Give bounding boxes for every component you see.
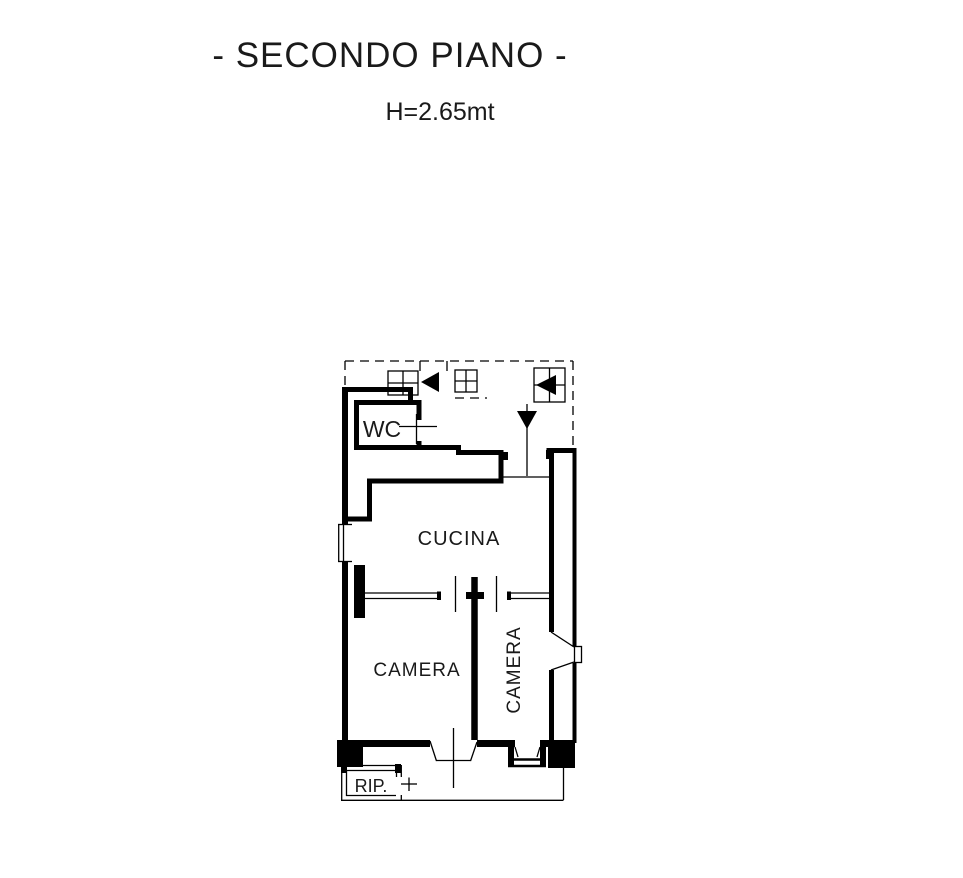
room-label-rip: RIP. <box>355 776 388 796</box>
window-bottom-left <box>430 728 477 788</box>
room-label-camera-left: CAMERA <box>373 660 460 681</box>
room-label-wc: WC <box>363 416 401 442</box>
walls <box>337 387 576 768</box>
kitchen-bedroom-partition <box>364 576 551 612</box>
window-left-wall <box>338 524 352 562</box>
floor-plan-drawing: WC CUCINA CAMERA CAMERA RIP. <box>0 0 963 878</box>
window-right-wall <box>551 632 582 670</box>
room-label-camera-right: CAMERA <box>504 626 525 713</box>
stair-arrow-left-icon <box>421 372 439 392</box>
floor-plan-page: { "page": { "background": "#ffffff", "li… <box>0 0 963 878</box>
room-label-cucina: CUCINA <box>418 528 501 550</box>
stair-arrow-left-icon <box>536 375 556 395</box>
window-bottom-right <box>508 742 546 766</box>
